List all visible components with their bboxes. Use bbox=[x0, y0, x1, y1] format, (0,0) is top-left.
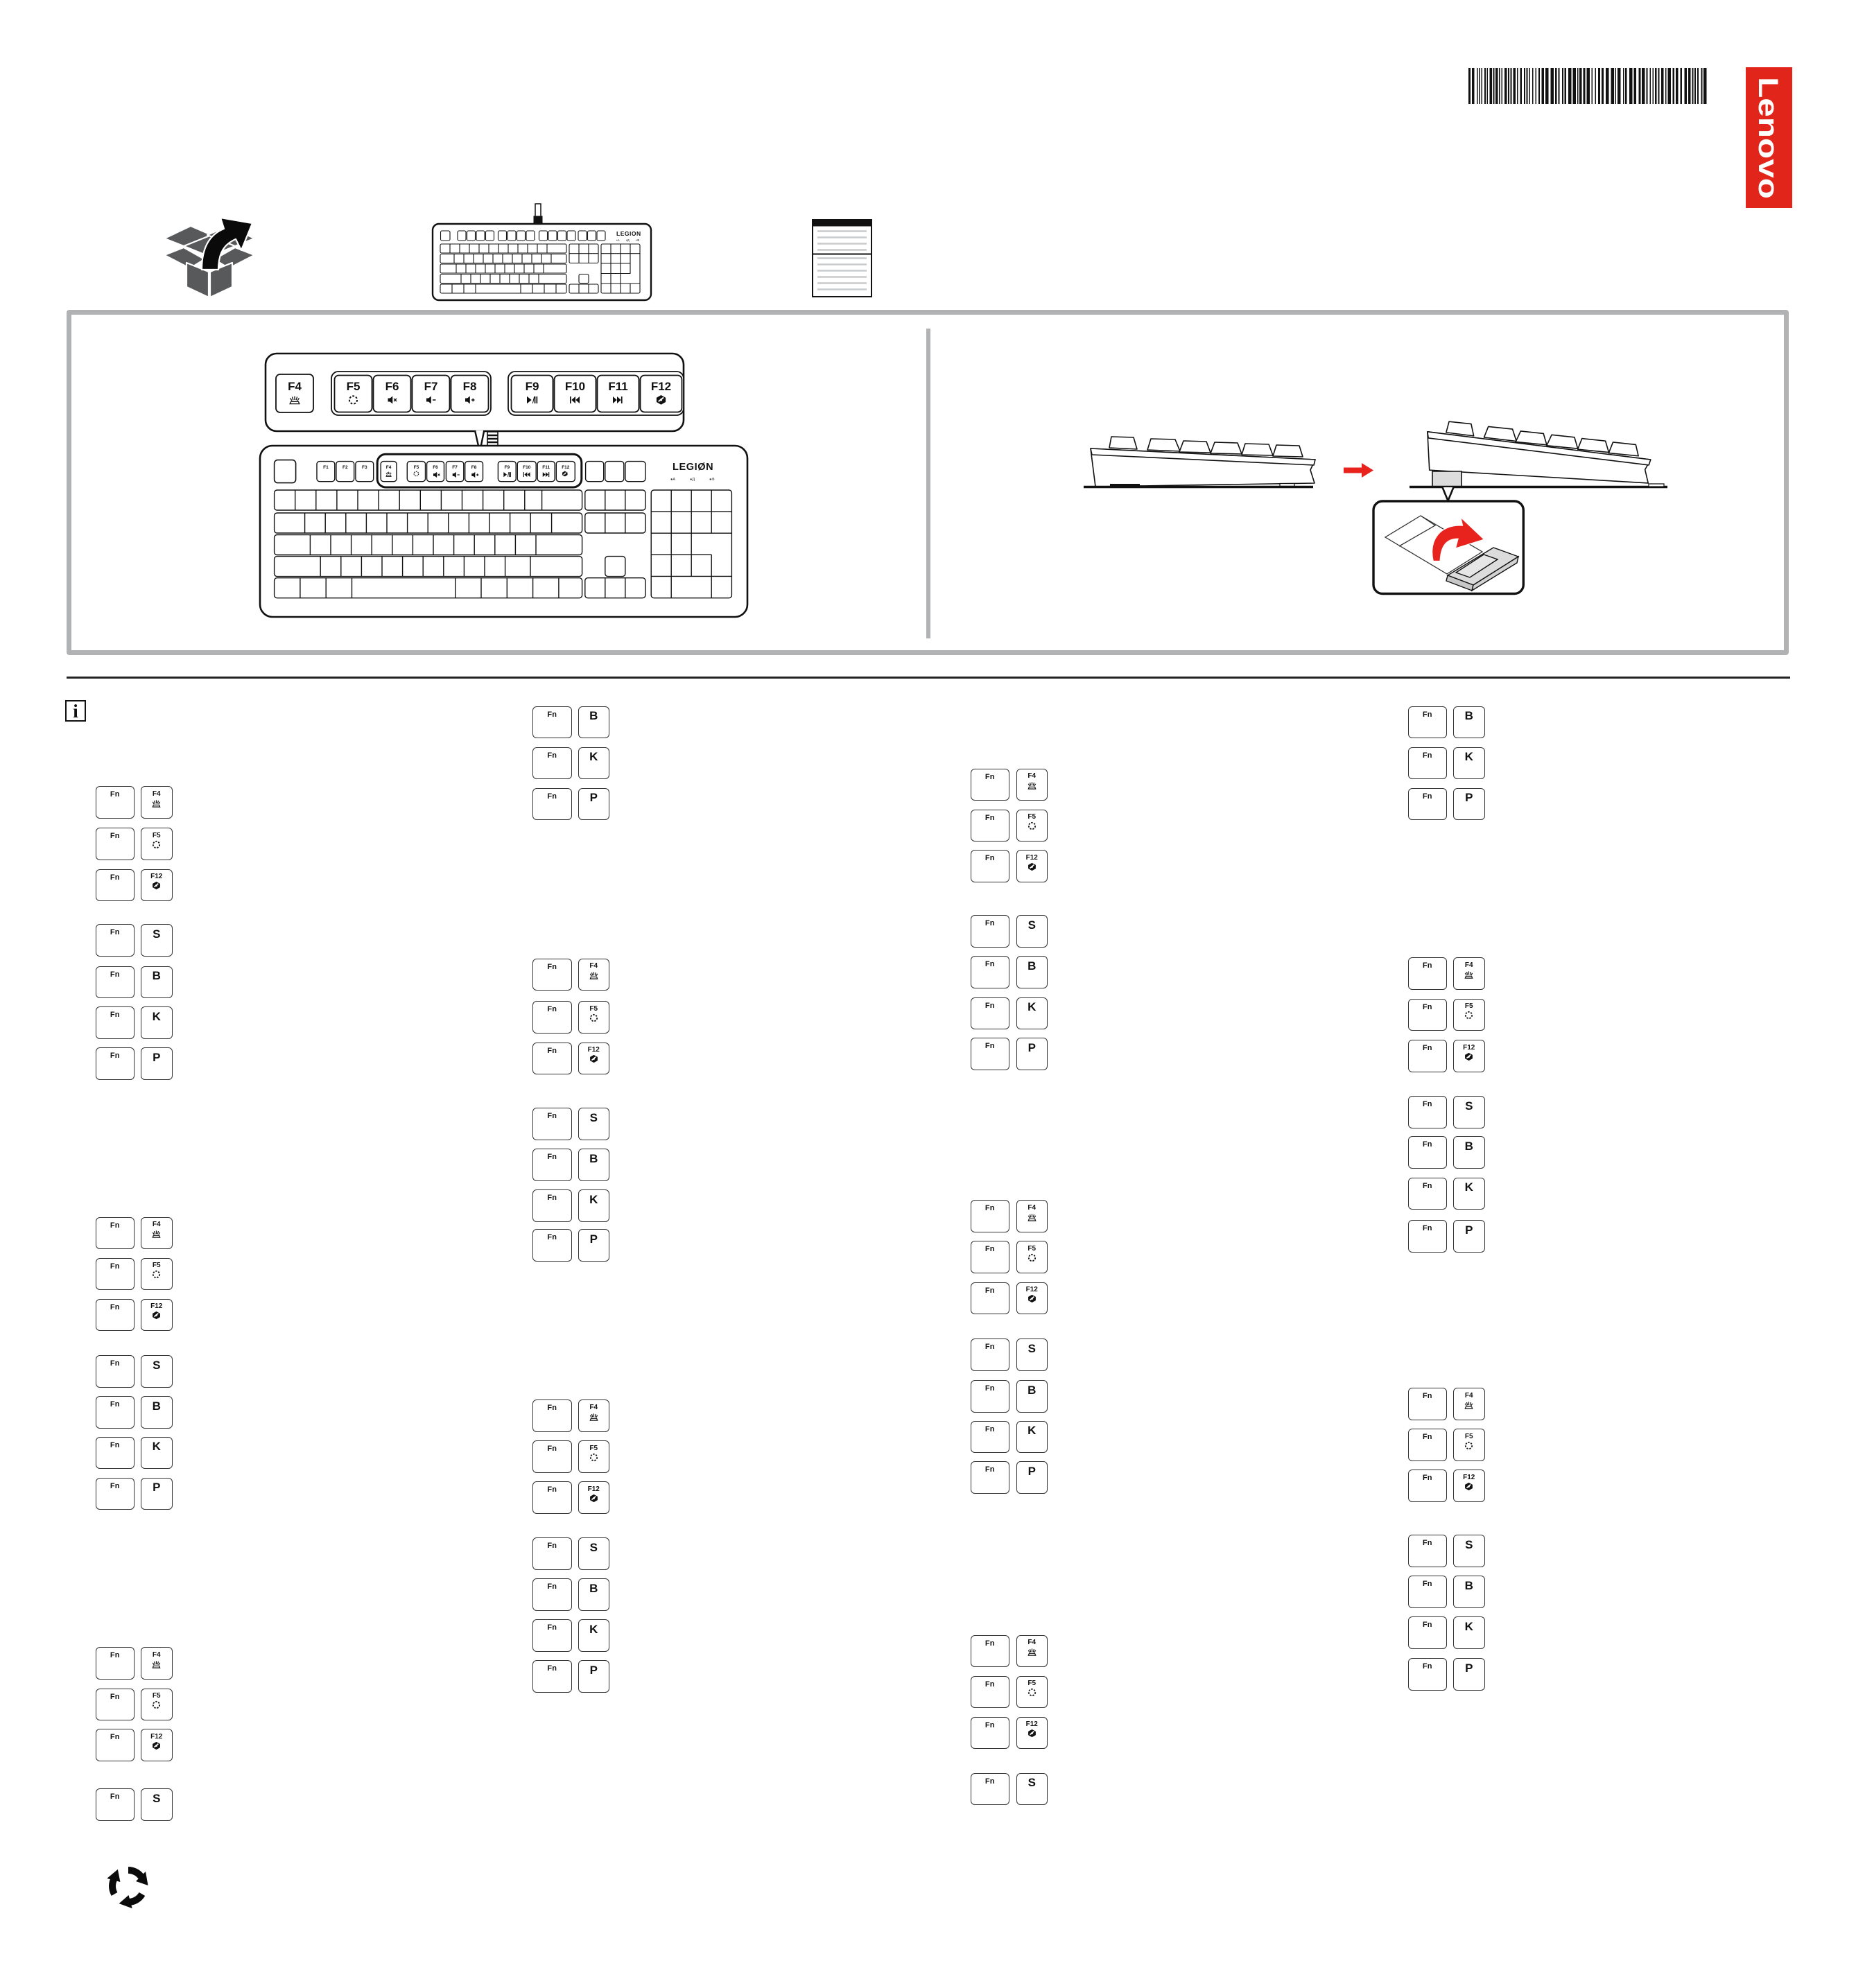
svg-text:●Д: ●Д bbox=[690, 478, 695, 482]
svg-text:F7: F7 bbox=[424, 380, 438, 393]
svg-text:F12: F12 bbox=[562, 465, 570, 470]
svg-text:Lenovo: Lenovo bbox=[1753, 77, 1783, 199]
svg-text:F11: F11 bbox=[542, 465, 550, 470]
svg-text:F10: F10 bbox=[565, 380, 585, 393]
svg-text:F12: F12 bbox=[651, 380, 671, 393]
svg-text:F7: F7 bbox=[452, 465, 458, 470]
svg-text:F8: F8 bbox=[471, 465, 477, 470]
svg-text:•Ф: •Ф bbox=[636, 238, 640, 242]
svg-text:•Д: •Д bbox=[626, 238, 630, 242]
svg-text:F8: F8 bbox=[463, 380, 477, 393]
svg-text:LEGIØN: LEGIØN bbox=[673, 462, 713, 473]
svg-text:F10: F10 bbox=[523, 465, 531, 470]
svg-text:F4: F4 bbox=[386, 465, 392, 470]
svg-text:F6: F6 bbox=[385, 380, 399, 393]
svg-text:F6: F6 bbox=[433, 465, 438, 470]
svg-text:F9: F9 bbox=[505, 465, 510, 470]
svg-text:F2: F2 bbox=[342, 465, 348, 470]
svg-text:F3: F3 bbox=[362, 465, 367, 470]
svg-text:F5: F5 bbox=[414, 465, 419, 470]
svg-text:F11: F11 bbox=[608, 380, 627, 393]
svg-text:●Ф: ●Ф bbox=[709, 478, 715, 482]
svg-text:F1: F1 bbox=[323, 465, 329, 470]
svg-text:F9: F9 bbox=[526, 380, 539, 393]
svg-text:LEGION: LEGION bbox=[616, 230, 641, 237]
svg-text:F5: F5 bbox=[347, 380, 361, 393]
svg-text:●А: ●А bbox=[670, 478, 675, 482]
svg-text:•А: •А bbox=[616, 238, 620, 242]
svg-text:F4: F4 bbox=[288, 380, 302, 393]
